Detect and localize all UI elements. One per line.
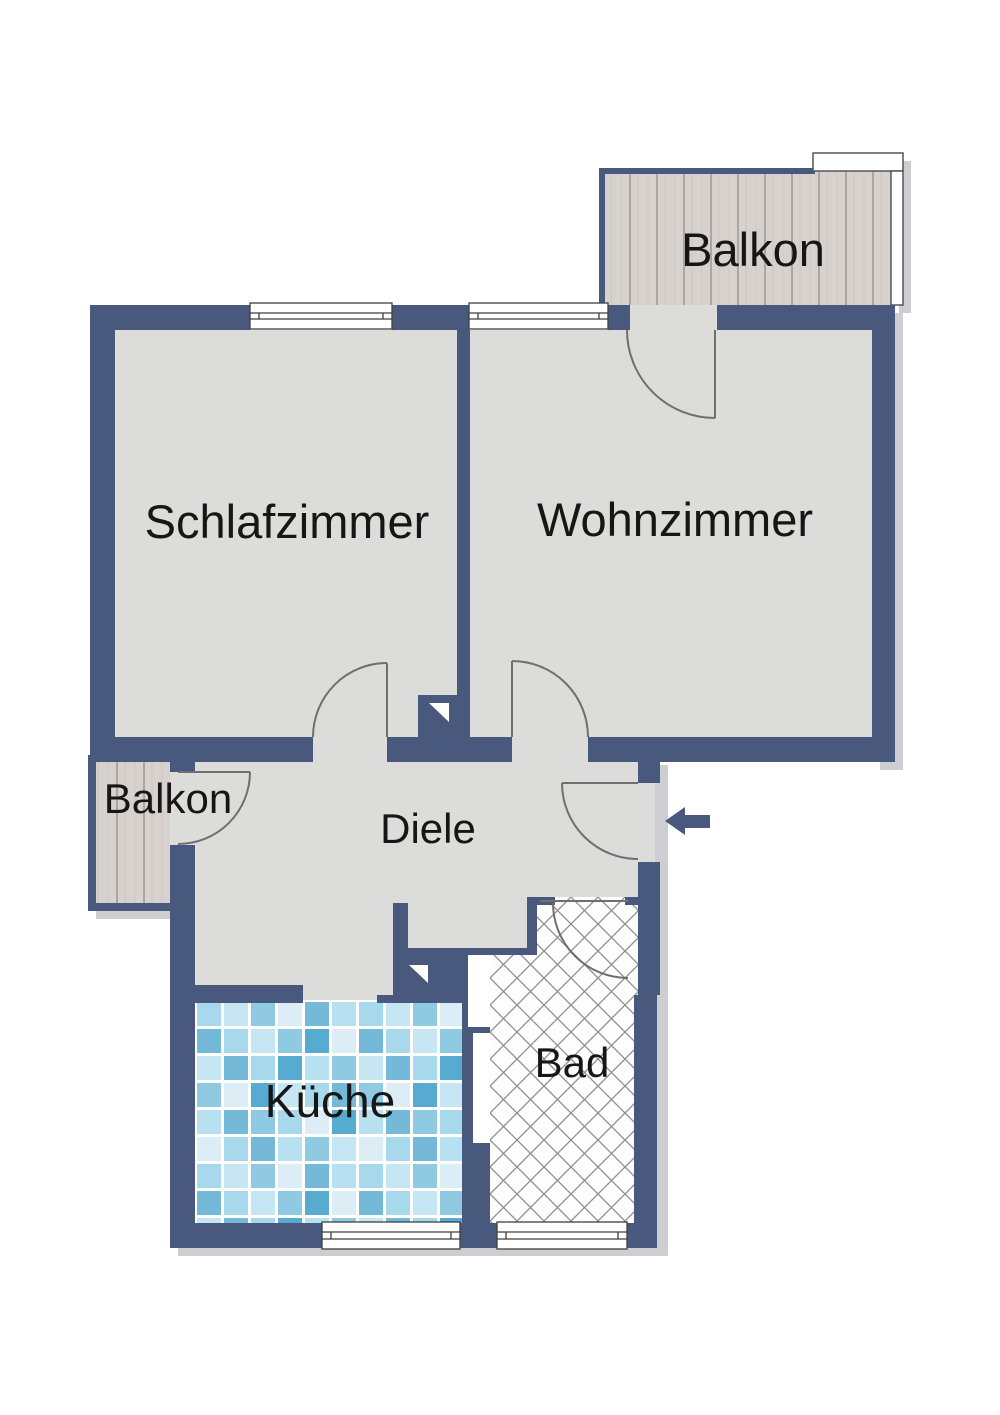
balcony-door-opening xyxy=(627,303,717,333)
bad-niche-lower xyxy=(473,1033,490,1143)
kueche-label: Küche xyxy=(265,1075,395,1127)
wohnzimmer-label: Wohnzimmer xyxy=(537,493,813,546)
balkon-top-label: Balkon xyxy=(681,223,825,276)
room-floors xyxy=(115,303,872,1003)
bad-niche-upper xyxy=(468,955,490,1027)
diele-floor-left xyxy=(195,897,393,995)
schlafzimmer-label: Schlafzimmer xyxy=(145,495,430,548)
bad-label: Bad xyxy=(535,1039,610,1086)
entry-door-opening xyxy=(638,783,655,862)
arrow-left-icon xyxy=(665,807,710,835)
schlafzimmer-door-opening xyxy=(313,737,387,762)
window-bad xyxy=(497,1222,627,1249)
window-wohnzimmer xyxy=(469,303,608,329)
diele-label: Diele xyxy=(380,805,476,852)
window-kueche xyxy=(322,1222,460,1249)
floor-plan-page: Balkon Schlafzimmer Wohnzimmer Balkon Di… xyxy=(0,0,1000,1415)
wohnzimmer-door-opening xyxy=(512,737,588,762)
balkon-left-label: Balkon xyxy=(104,775,232,822)
diele-floor-right xyxy=(393,897,537,948)
floor-plan-canvas: Balkon Schlafzimmer Wohnzimmer Balkon Di… xyxy=(0,0,1000,1415)
window-schlafzimmer xyxy=(250,303,392,329)
